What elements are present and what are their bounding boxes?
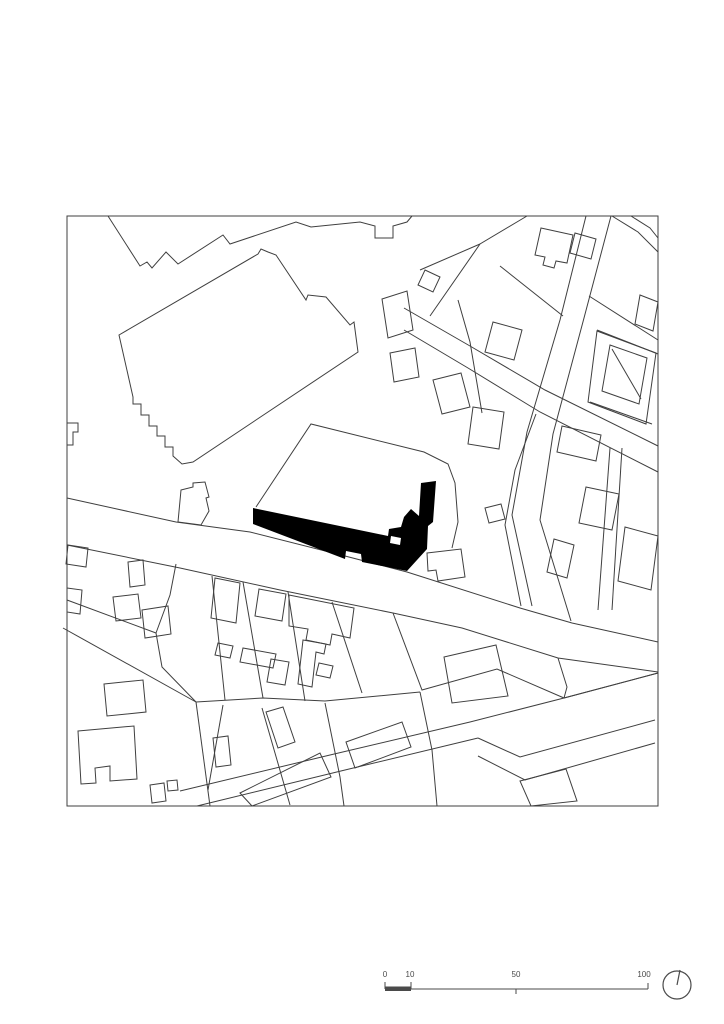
building-outline [289, 595, 354, 645]
parcel-line [108, 216, 412, 268]
parcel-line [612, 448, 622, 610]
street-line [540, 216, 611, 621]
building-outline [485, 322, 522, 360]
building-outline [635, 295, 658, 331]
building-outline [588, 331, 656, 424]
building-outline [255, 589, 286, 621]
building-outline [346, 722, 411, 768]
building-outline [113, 594, 141, 621]
street-line [180, 673, 658, 791]
parcel-line [196, 692, 420, 702]
building-outline [468, 407, 504, 449]
building-outline [78, 726, 137, 784]
scale-label-10: 10 [406, 971, 415, 979]
building-outline [535, 228, 573, 268]
parcel-line [208, 705, 223, 790]
parcel-line [612, 349, 641, 399]
parcel-line [243, 582, 263, 698]
street-line [478, 743, 655, 780]
street-line [404, 330, 658, 472]
parcel-line [500, 266, 563, 316]
street-line [612, 216, 658, 252]
building-outline [418, 270, 440, 292]
building-outline [570, 233, 596, 259]
building-outline [178, 482, 209, 525]
building-outline [485, 504, 505, 523]
highlighted-building [253, 481, 436, 571]
parcel-line [430, 216, 527, 316]
building-outline [618, 527, 658, 590]
building-outline [167, 780, 178, 791]
building-outline [211, 578, 240, 623]
scale-label-50: 50 [512, 971, 521, 979]
building-outline [316, 663, 333, 678]
building-outline [119, 249, 358, 464]
building-outline [579, 487, 619, 530]
building-outline [240, 753, 331, 806]
building-outline [557, 426, 601, 461]
parcel-line [393, 613, 564, 698]
map-frame [67, 216, 658, 806]
parcel-line [67, 423, 78, 445]
parcel-line [63, 628, 196, 702]
street-line [631, 216, 658, 238]
building-outline [602, 345, 647, 404]
building-outline [547, 539, 574, 578]
parcel-line [332, 602, 362, 693]
parcel-line [564, 673, 658, 698]
building-outline [382, 291, 413, 338]
building-outline [433, 373, 470, 414]
building-outline [444, 645, 508, 703]
parcel-line [505, 414, 536, 606]
building-outline [427, 549, 465, 581]
parcel-line [420, 692, 437, 806]
parcel-line [590, 402, 652, 424]
street-line [404, 308, 658, 446]
parcel-line [589, 296, 658, 340]
building-outline [267, 659, 289, 685]
street-line [67, 545, 658, 672]
parcel-line [458, 300, 482, 413]
page: 0 10 50 100 [0, 0, 724, 1024]
scale-label-0: 0 [383, 971, 387, 979]
scalebar-thick-segment [385, 987, 411, 992]
parcel-line [196, 702, 210, 806]
building-outline [128, 560, 145, 587]
building-outline [240, 648, 276, 668]
building-outline [266, 707, 295, 748]
parcel-line [262, 708, 290, 805]
building-outline [215, 643, 233, 658]
building-outline [104, 680, 146, 716]
scale-label-100: 100 [637, 971, 650, 979]
street-line [67, 498, 658, 642]
building-outline [150, 783, 166, 803]
street-line [478, 720, 655, 757]
site-plan-svg [0, 0, 724, 1024]
parcel-line [156, 564, 196, 702]
parcel-line [558, 658, 567, 698]
building-outline [213, 736, 231, 767]
north-needle-icon [677, 970, 680, 985]
parcel-line [325, 703, 344, 806]
parcel-line [212, 576, 225, 700]
street-line [512, 216, 586, 606]
building-outline [520, 769, 577, 806]
building-outline [390, 348, 419, 382]
